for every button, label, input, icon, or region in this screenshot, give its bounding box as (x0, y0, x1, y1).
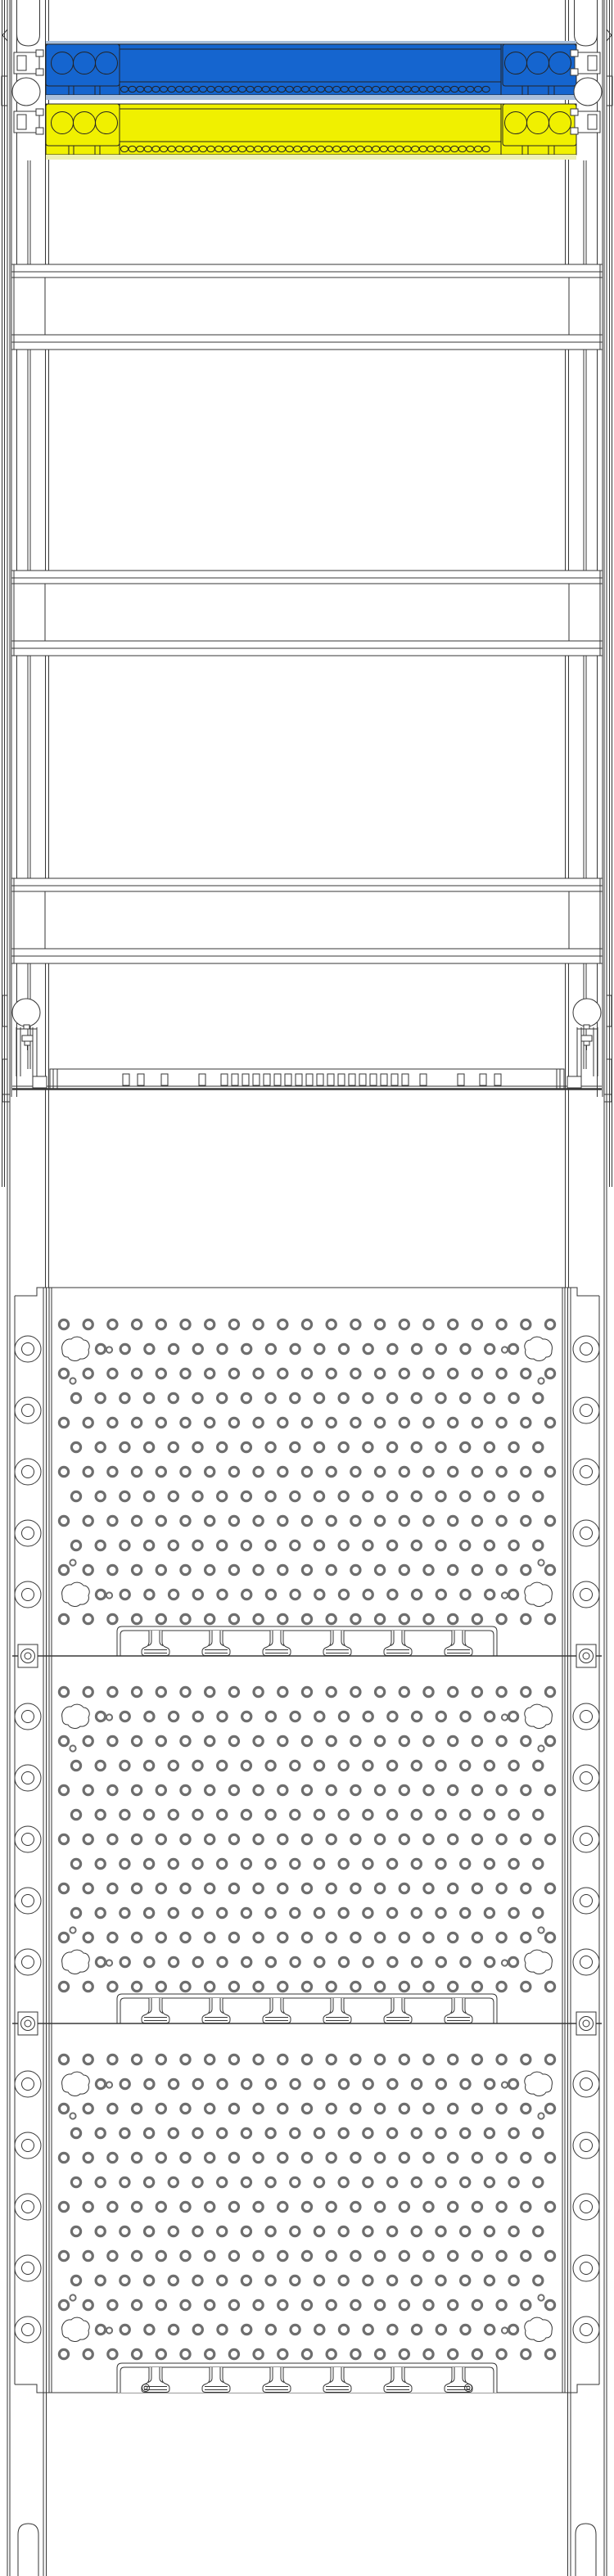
busbar-blue-top-shadow (46, 41, 576, 44)
arch-slot-right (576, 2524, 596, 2576)
busbar-yellow (46, 104, 576, 160)
busbar-blue (46, 41, 576, 100)
fork-slot-left (17, 0, 40, 46)
mounting-panels (15, 1288, 599, 2393)
din-strip (12, 1069, 602, 1089)
latch-left (12, 999, 47, 1088)
cross-rails (11, 264, 603, 963)
corner-knob-right (574, 78, 602, 106)
busbar-blue-bottom-shadow (46, 95, 576, 100)
corner-knob-left (12, 78, 40, 106)
latch-knob-left (12, 999, 40, 1026)
latch-right (567, 999, 601, 1088)
panel-top-step (15, 1288, 599, 1296)
busbar-yellow-bottom-shadow (46, 155, 576, 160)
drawing-canvas (0, 0, 614, 2576)
fork-slot-right (575, 0, 598, 46)
arch-slot-left (18, 2524, 38, 2576)
cad-drawing (0, 0, 614, 2576)
latch-knob-right (573, 999, 601, 1026)
